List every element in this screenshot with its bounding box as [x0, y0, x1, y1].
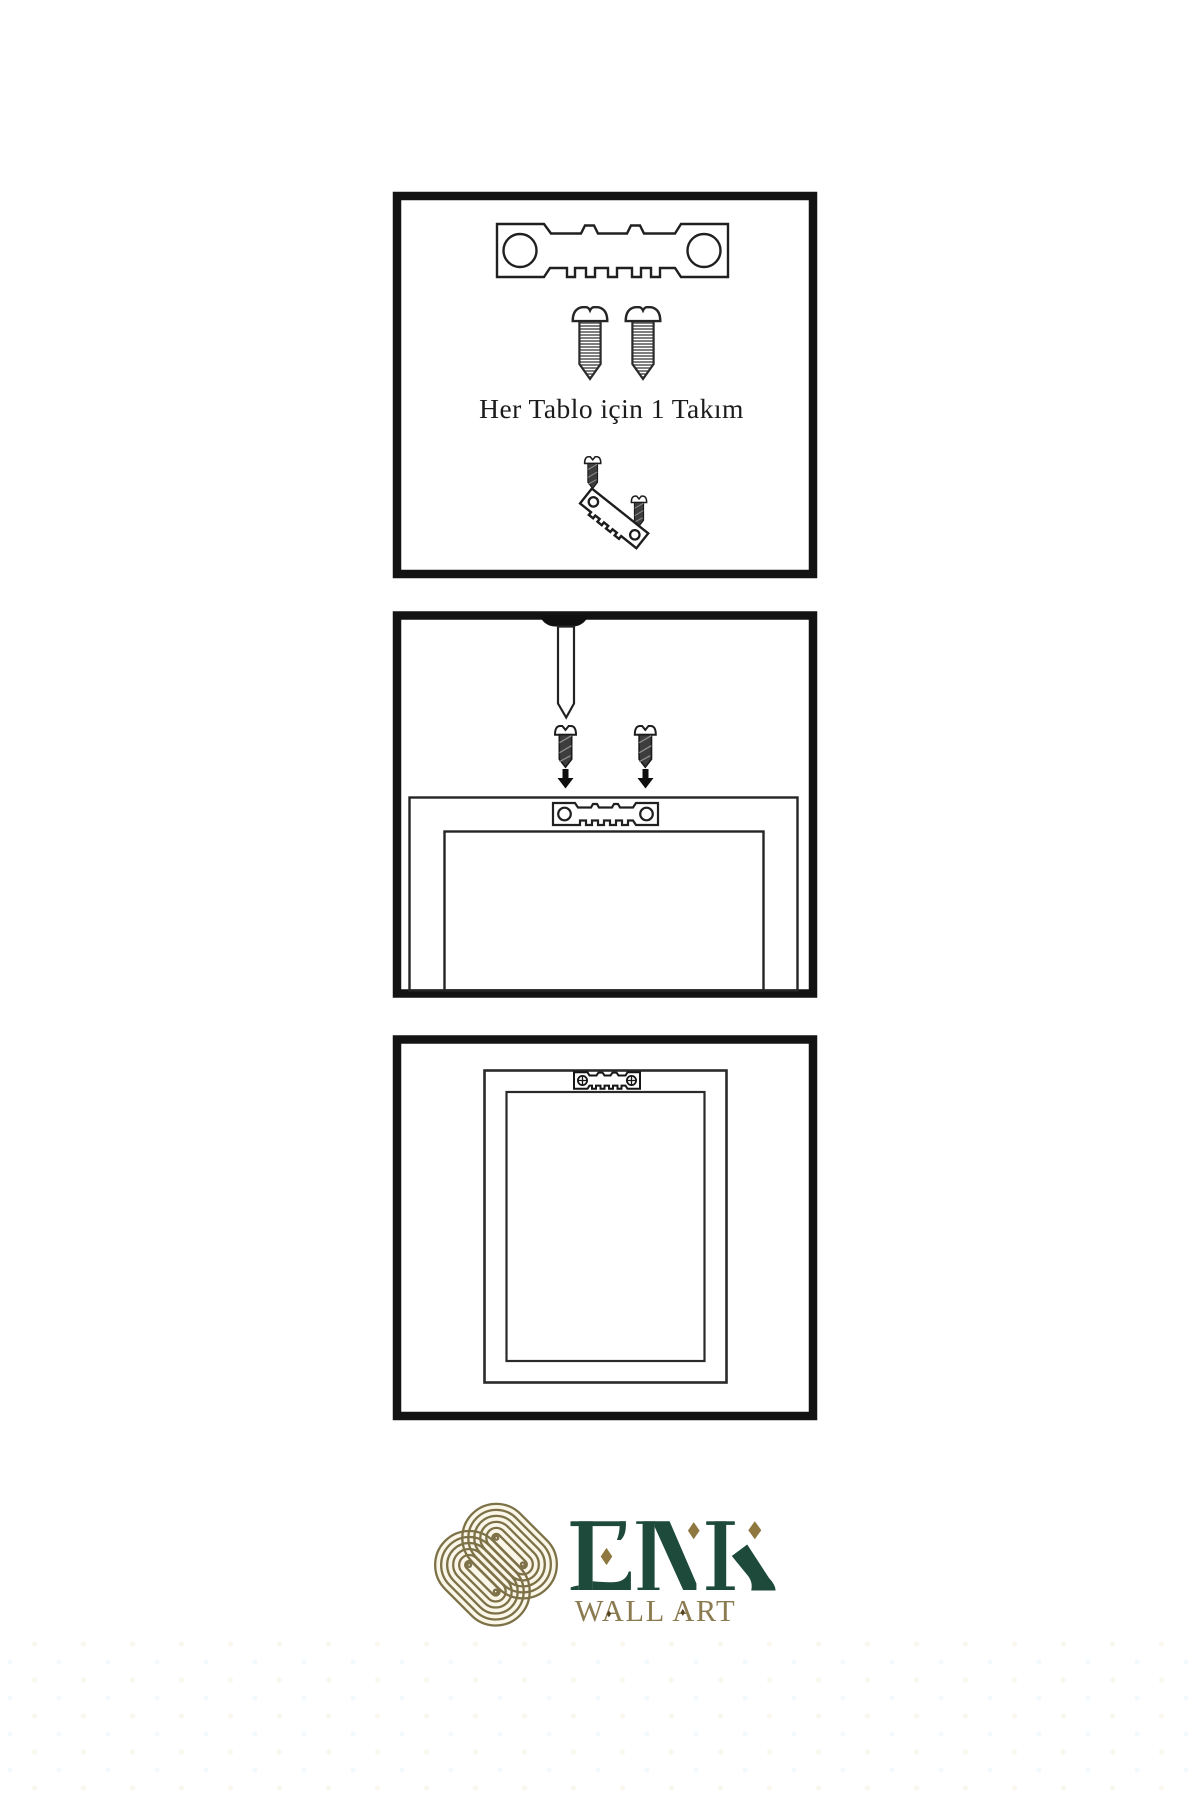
svg-text:Her Tablo için 1 Takım: Her Tablo için 1 Takım [479, 393, 744, 424]
svg-text:WALL ART: WALL ART [575, 1594, 736, 1628]
